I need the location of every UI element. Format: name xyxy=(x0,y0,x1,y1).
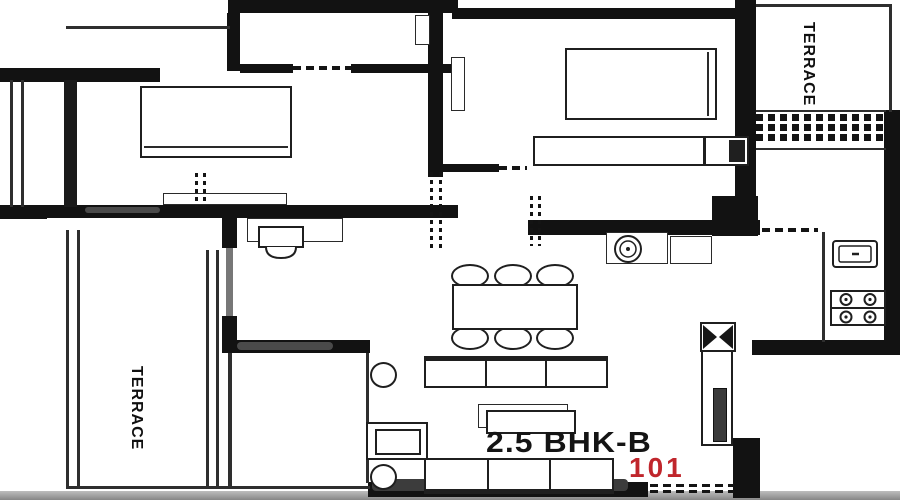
gas-stove-icon xyxy=(830,290,886,326)
stool-icon xyxy=(370,362,397,388)
door-leaf xyxy=(451,57,465,111)
wall-segment xyxy=(733,438,760,498)
terrace-boundary xyxy=(77,230,80,486)
terrace-label-top-right: TERRACE xyxy=(800,22,816,117)
kitchen-sink-icon xyxy=(832,240,878,268)
side-table-icon xyxy=(366,422,428,460)
wall-segment xyxy=(64,80,77,207)
door-sill xyxy=(85,207,160,213)
sofa-icon xyxy=(424,356,608,388)
bed-icon xyxy=(565,48,717,120)
terrace-boundary xyxy=(216,250,219,488)
desk-icon xyxy=(163,193,287,205)
kitchen-counter-edge xyxy=(822,232,825,342)
railing-hatch-icon xyxy=(756,124,886,131)
door-opening xyxy=(530,196,541,246)
dressing-basin-icon xyxy=(258,226,304,260)
wall-niche xyxy=(415,15,430,45)
unit-type-label: 2.5 BHK-B xyxy=(486,427,652,460)
wall-line xyxy=(366,353,369,483)
railing-edge xyxy=(756,110,886,112)
floor-plan: TERRACE TERRACE 2.5 BHK-B 101 xyxy=(0,0,900,500)
railing-line xyxy=(10,80,13,207)
sofa-icon xyxy=(424,458,614,494)
terrace-label-bottom-left: TERRACE xyxy=(128,366,144,476)
wall-segment xyxy=(443,164,499,172)
door-opening xyxy=(293,66,351,70)
wall-line xyxy=(228,353,232,488)
railing-hatch-icon xyxy=(756,134,886,141)
terrace-boundary xyxy=(66,230,69,488)
terrace-boundary xyxy=(889,4,892,112)
main-door-opening xyxy=(650,490,734,493)
wall-segment xyxy=(428,13,443,177)
terrace-boundary xyxy=(756,4,892,7)
wall-segment xyxy=(240,64,293,73)
dining-table-icon xyxy=(452,284,578,330)
wall-segment xyxy=(752,340,900,355)
wall-segment xyxy=(222,210,237,248)
door-sill xyxy=(237,342,333,350)
wall-segment xyxy=(228,0,458,13)
unit-number-label: 101 xyxy=(629,452,685,484)
wall-segment xyxy=(452,8,735,19)
wall-segment xyxy=(226,248,233,316)
main-door-opening xyxy=(650,484,734,487)
wall-segment xyxy=(884,110,900,344)
wall-segment xyxy=(0,68,160,82)
bed-icon xyxy=(140,86,292,158)
stool-icon xyxy=(370,464,397,490)
railing-hatch-icon xyxy=(756,114,886,121)
door-opening xyxy=(499,166,527,170)
thin-wall-line xyxy=(66,26,230,29)
wardrobe-icon xyxy=(533,136,749,166)
wash-basin-icon xyxy=(613,234,643,264)
railing-edge xyxy=(756,148,886,150)
terrace-boundary xyxy=(206,250,209,488)
wall-segment xyxy=(227,13,240,71)
door-opening xyxy=(762,228,818,232)
counter xyxy=(670,236,712,264)
door-opening xyxy=(195,173,206,207)
door-opening xyxy=(430,172,442,252)
duct-shaft-icon xyxy=(700,322,736,352)
railing-line xyxy=(21,80,24,207)
wall-segment xyxy=(712,196,758,236)
tv-unit-icon xyxy=(701,350,733,446)
